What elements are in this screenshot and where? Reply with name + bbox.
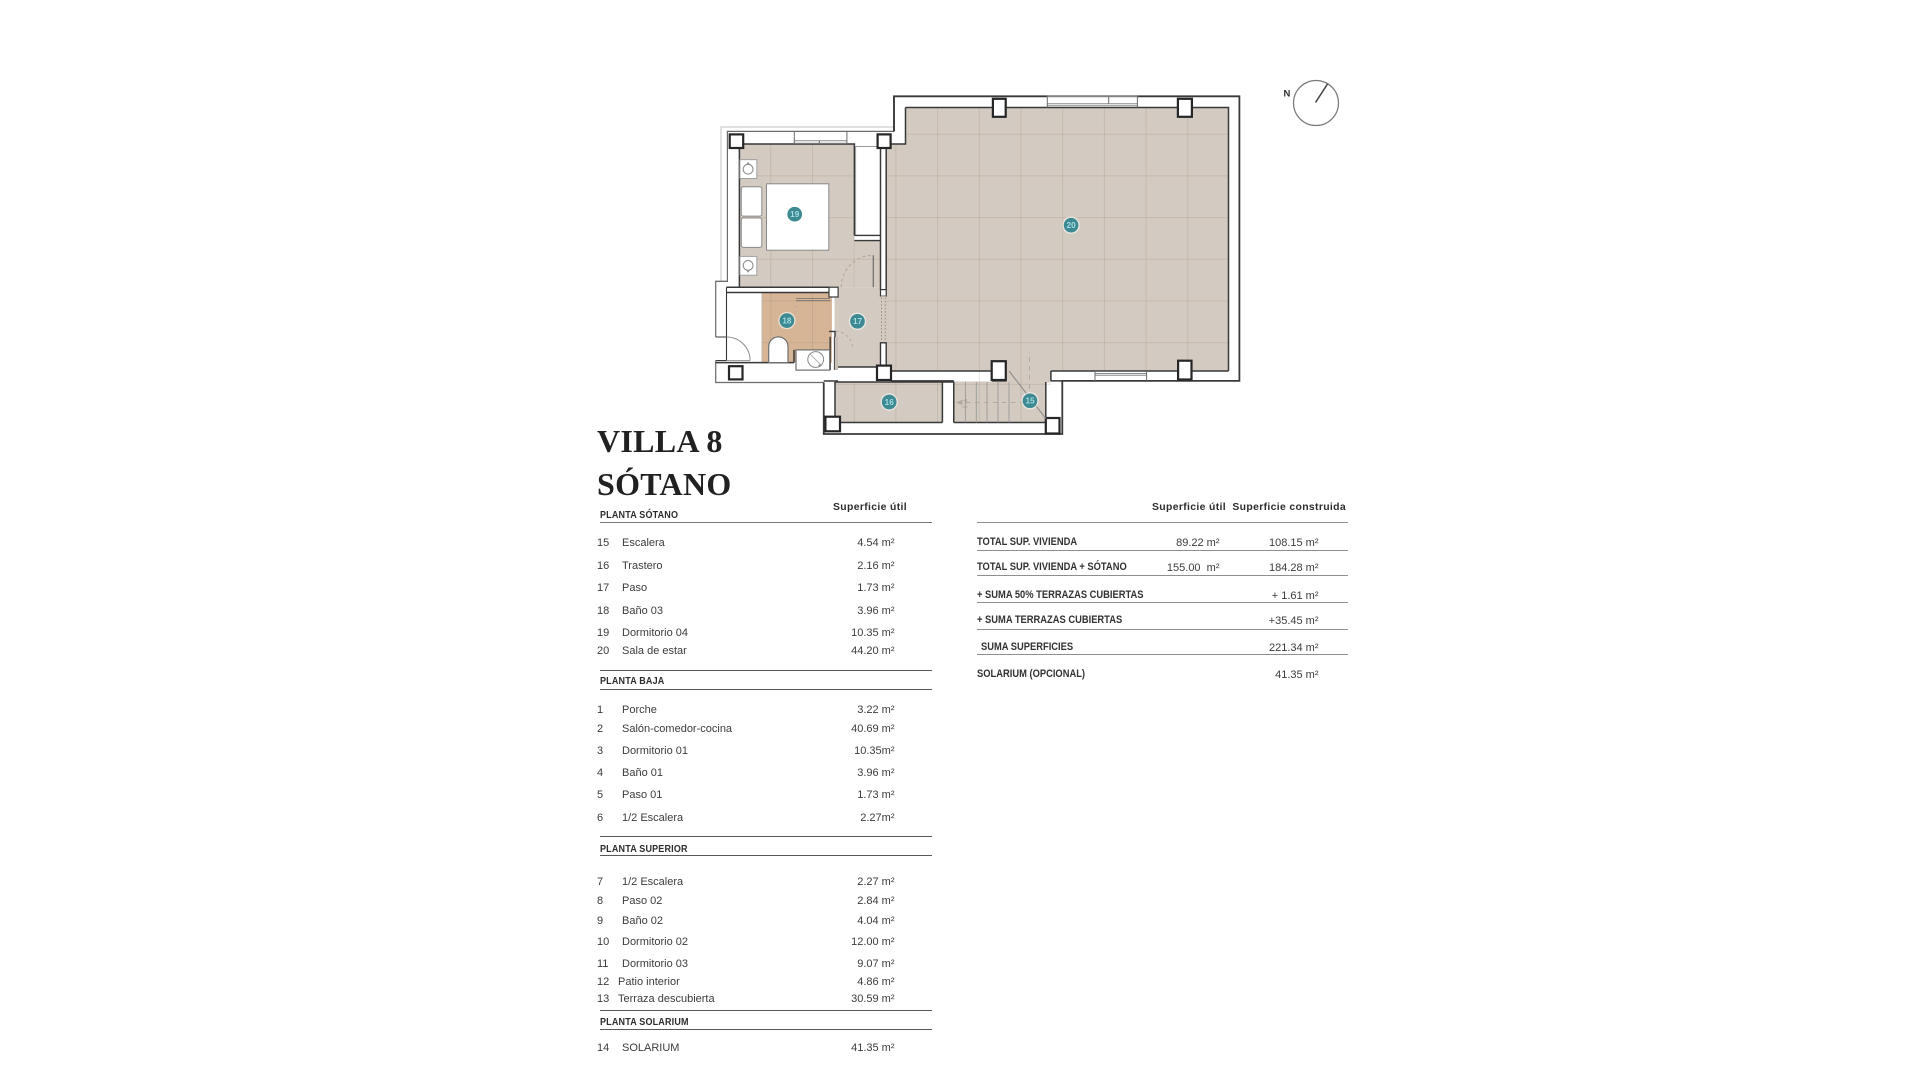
svg-text:20: 20: [1067, 221, 1077, 230]
svg-text:17: 17: [853, 317, 863, 326]
svg-text:16: 16: [885, 398, 895, 407]
svg-text:N: N: [1284, 89, 1291, 100]
svg-text:1: 1: [962, 397, 969, 411]
svg-text:15: 15: [1025, 397, 1035, 406]
svg-text:18: 18: [782, 317, 792, 326]
svg-text:19: 19: [790, 210, 800, 219]
